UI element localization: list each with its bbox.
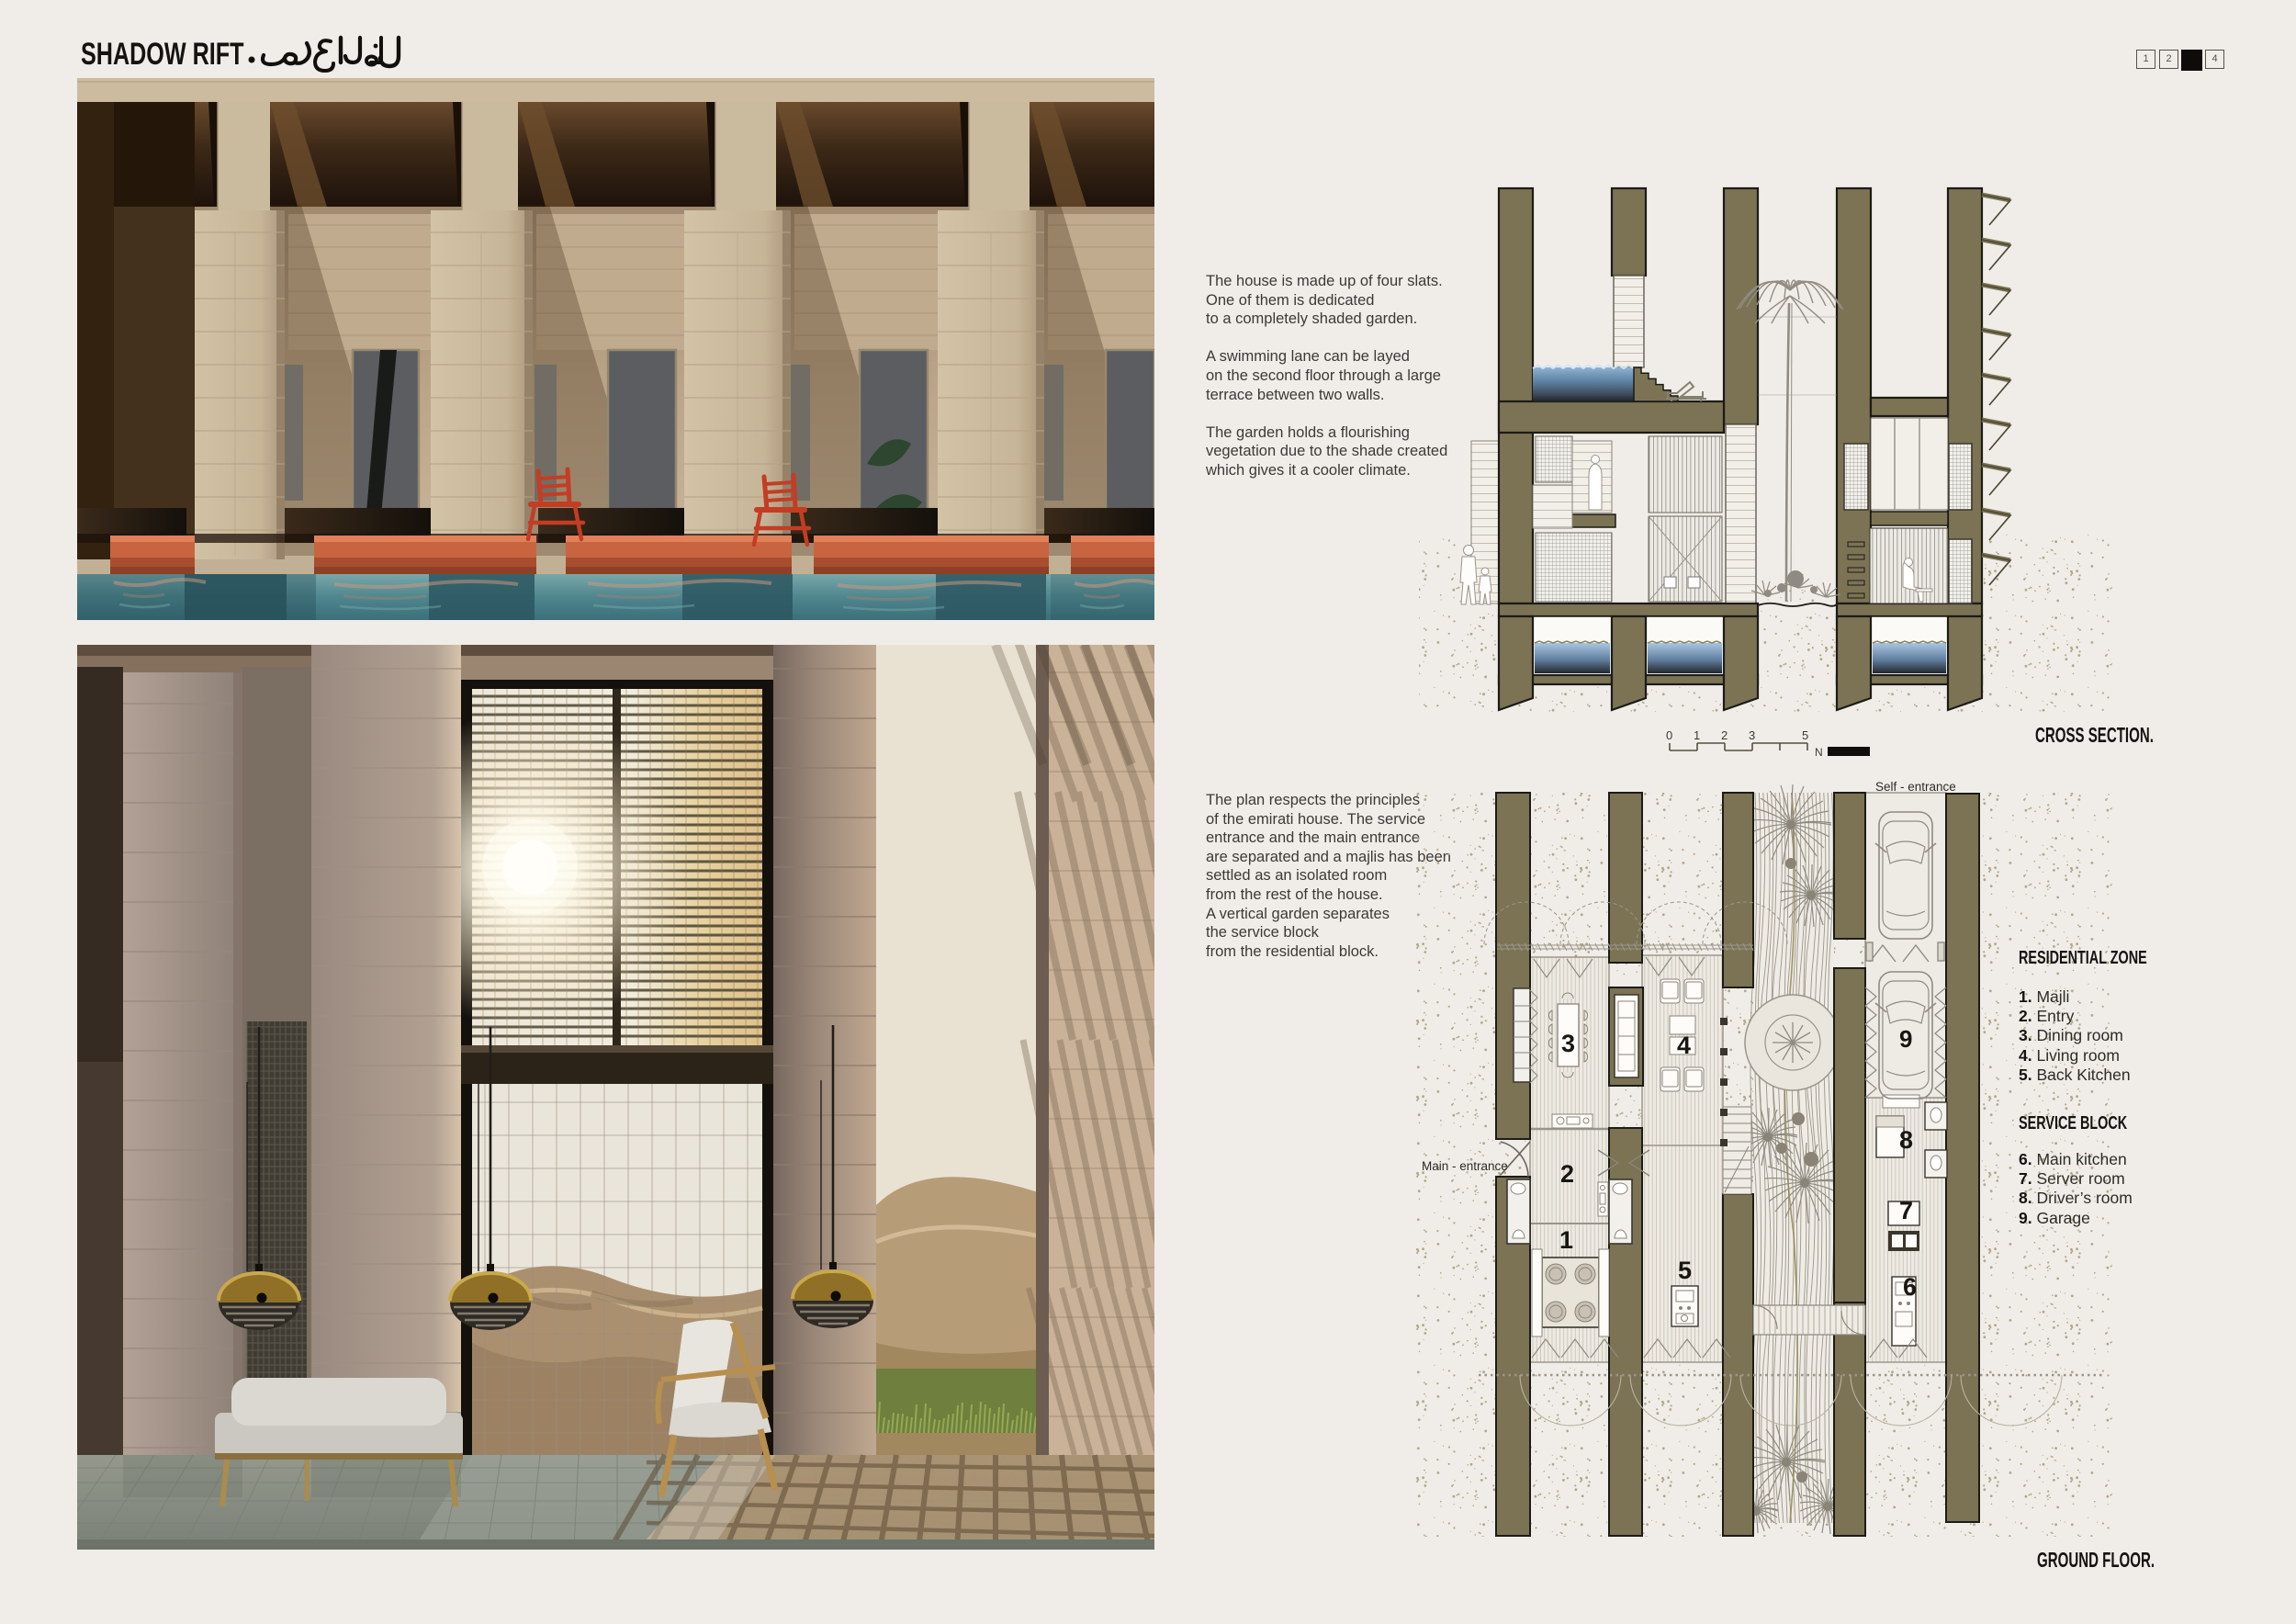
svg-text:0: 0 <box>1666 730 1672 742</box>
svg-text:5: 5 <box>1802 730 1808 742</box>
svg-text:1: 1 <box>1694 730 1700 742</box>
svg-text:3: 3 <box>1749 730 1755 742</box>
svg-text:5: 5 <box>1678 1257 1692 1284</box>
svg-text:9: 9 <box>1899 1025 1912 1053</box>
svg-text:4: 4 <box>1677 1032 1691 1059</box>
svg-text:3: 3 <box>1561 1030 1575 1057</box>
svg-text:2: 2 <box>1560 1160 1574 1188</box>
svg-text:6: 6 <box>1903 1273 1917 1301</box>
svg-text:1: 1 <box>1559 1226 1573 1254</box>
svg-text:N: N <box>1815 746 1823 759</box>
svg-text:2: 2 <box>1721 730 1728 742</box>
svg-text:8: 8 <box>1899 1126 1913 1154</box>
svg-text:7: 7 <box>1899 1197 1913 1224</box>
